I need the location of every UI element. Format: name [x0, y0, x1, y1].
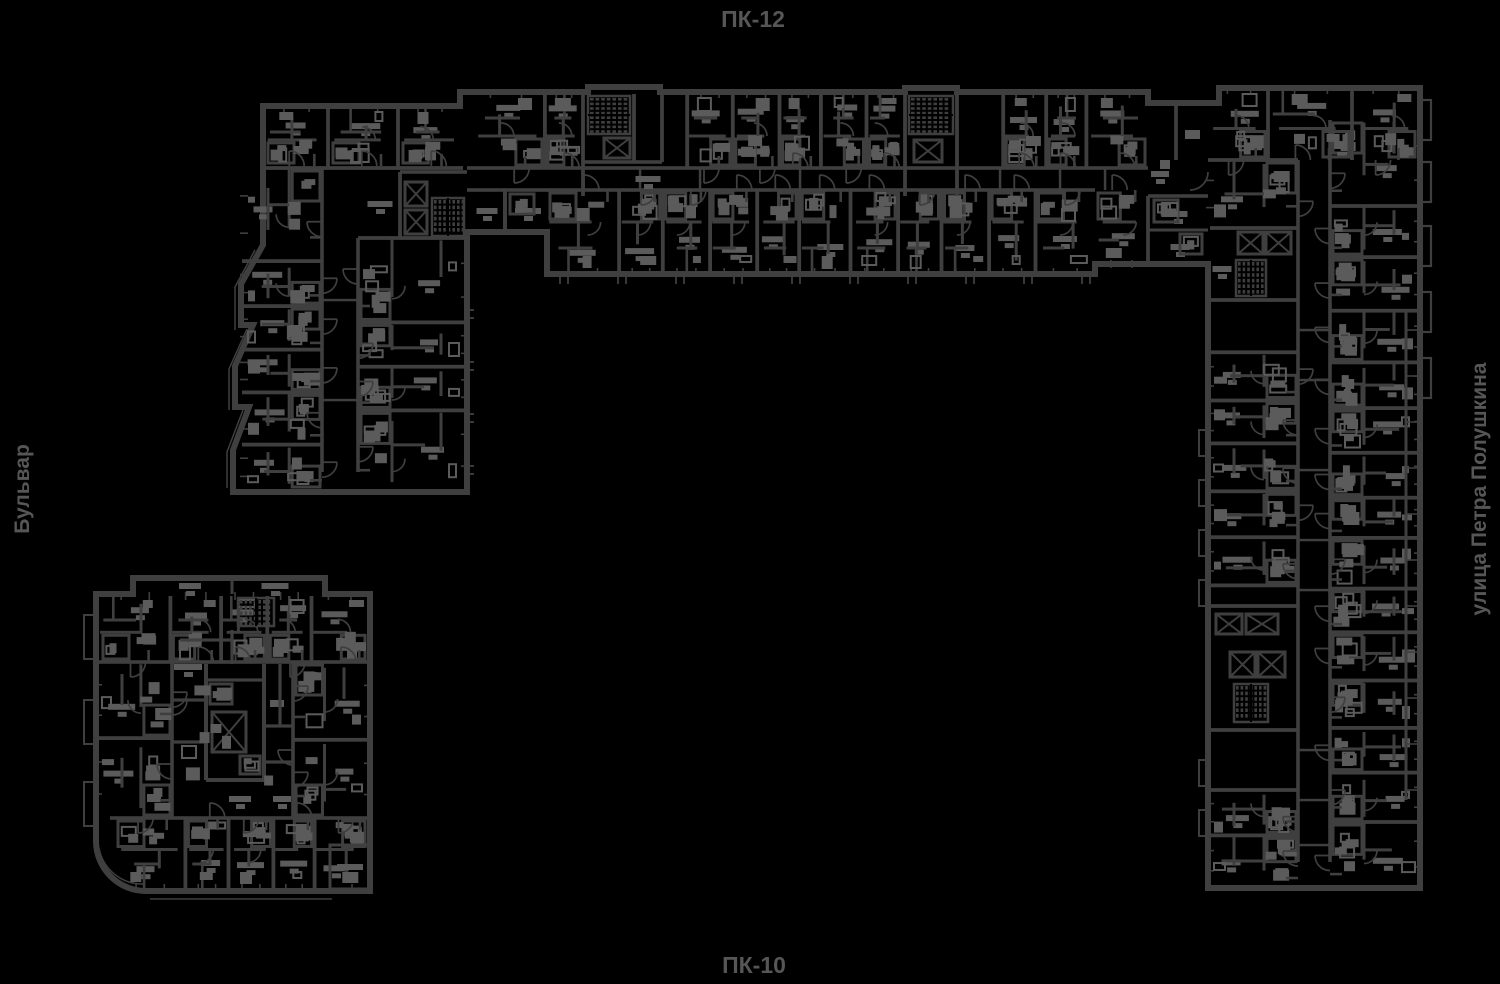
- svg-text:улица Петра Полушкина: улица Петра Полушкина: [1468, 362, 1491, 615]
- svg-text:Бульвар: Бульвар: [11, 444, 34, 534]
- svg-text:ПК-10: ПК-10: [722, 952, 786, 978]
- svg-text:ПК-12: ПК-12: [721, 6, 785, 32]
